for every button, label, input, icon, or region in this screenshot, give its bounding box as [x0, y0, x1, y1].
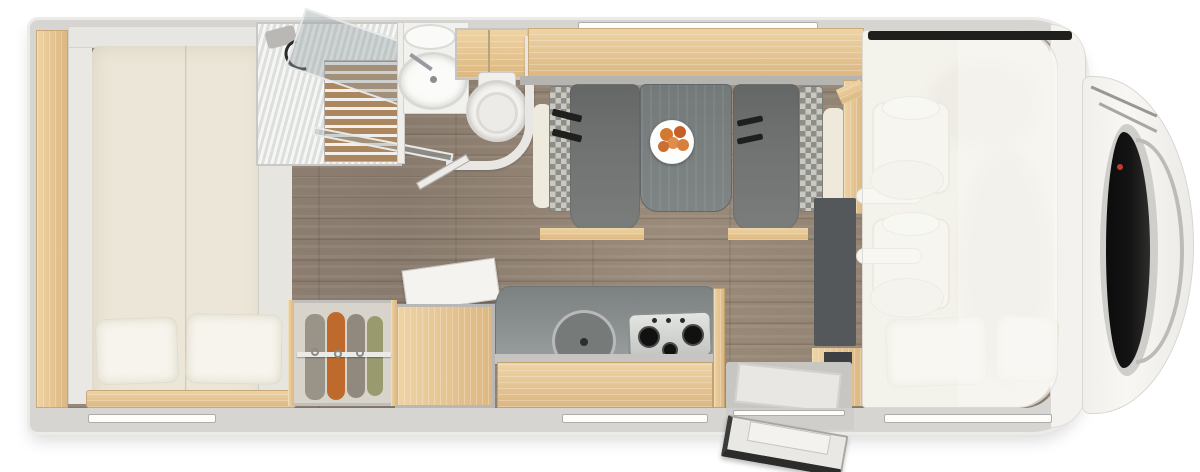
dinette-bench-left — [570, 84, 640, 232]
toilet-partition-wall — [446, 36, 534, 170]
hanging-garment — [305, 314, 325, 400]
basin-drain — [430, 76, 437, 83]
door-sill — [733, 410, 845, 416]
dinette-bench-right — [733, 84, 799, 232]
hanger-hook — [311, 348, 319, 356]
hanger-hook — [334, 350, 342, 358]
fruit — [677, 139, 689, 151]
bed-foot-wood-ledge — [86, 390, 296, 408]
hob-knob — [652, 318, 657, 323]
motorhome-floorplan — [0, 0, 1200, 472]
window-slot — [88, 414, 216, 423]
hob-burner — [638, 326, 660, 348]
wardrobe-side-wood — [288, 300, 294, 406]
kitchen-drawer-front — [497, 362, 713, 408]
overhead-locker-band — [68, 26, 278, 48]
dinette-backrest-left — [549, 86, 572, 212]
rear-wall-wood-shelf — [36, 30, 68, 408]
hanger-hook — [356, 349, 364, 357]
dropdown-bed-overlay-dense — [958, 32, 1058, 406]
hob-burner — [682, 324, 704, 346]
media-cabinet-panel — [814, 198, 856, 346]
counter-end-cap — [713, 288, 725, 408]
bench-base-wood — [728, 228, 808, 240]
window-slot — [562, 414, 708, 423]
wardrobe-side-wood — [391, 300, 397, 406]
dinette-side-cushion — [823, 108, 845, 212]
window-slot — [884, 414, 1052, 423]
dinette-backrest-right — [799, 86, 823, 212]
hob-knob — [680, 318, 685, 323]
hob-knob — [666, 318, 671, 323]
fruit — [674, 126, 686, 138]
bed-pillow — [185, 313, 282, 385]
fridge-cabinet — [395, 304, 495, 408]
brand-badge-dot — [1117, 164, 1123, 170]
bed-pillow — [95, 317, 179, 386]
bench-base-wood — [540, 228, 644, 240]
dinette-overhead-shelf — [528, 28, 864, 78]
fruit — [658, 141, 669, 152]
windshield-top-bar — [868, 31, 1072, 40]
sink-drain — [580, 338, 588, 346]
bed-head-trim — [68, 46, 92, 404]
